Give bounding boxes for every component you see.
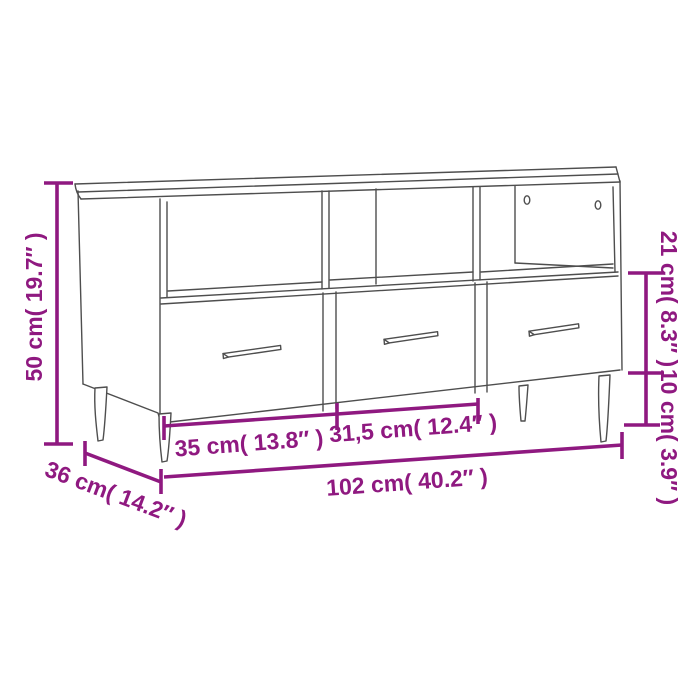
- drawer3-handle: [529, 324, 580, 336]
- side-panel-left-edge: [78, 191, 83, 384]
- shelf-front-edge: [161, 272, 618, 298]
- top-slab-front-top-edge: [78, 174, 618, 192]
- drawer2-handle: [384, 332, 438, 345]
- cabinet-bottom-edge: [161, 370, 620, 423]
- right-inner-edge: [613, 187, 615, 272]
- left-compartment-width-label: 35 cm( 13.8″ ): [174, 424, 325, 461]
- dimension-labels: 50 cm( 19.7″ ) 36 cm( 14.2″ ) 35 cm( 13.…: [21, 231, 682, 532]
- compartment2-floor-line: [330, 272, 473, 280]
- drawer1-handle: [223, 345, 281, 358]
- leg-back-left: [95, 387, 107, 441]
- cabinet-drawing: [75, 167, 622, 462]
- screw-hole-right: [595, 201, 601, 209]
- dimension-lines: [44, 183, 664, 494]
- screw-hole-left: [524, 196, 530, 204]
- top-slab-front-bottom-edge: [81, 182, 620, 199]
- leg-front-right: [599, 375, 610, 442]
- leg-height-label: 10 cm( 3.9″ ): [656, 369, 682, 505]
- depth-label: 36 cm( 14.2″ ): [42, 456, 191, 533]
- dimension-diagram: 50 cm( 19.7″ ) 36 cm( 14.2″ ) 35 cm( 13.…: [0, 0, 700, 700]
- top-slab-back-edge: [75, 167, 616, 184]
- right-outer-edge: [620, 181, 622, 370]
- drawer-top-edge: [161, 276, 618, 304]
- leg-back-right: [519, 385, 528, 421]
- total-width-label: 102 cm( 40.2″ ): [325, 463, 488, 501]
- drawer-section-height-label: 21 cm( 8.3″ ): [656, 231, 682, 367]
- diagram-page: 50 cm( 19.7″ ) 36 cm( 14.2″ ) 35 cm( 13.…: [0, 0, 700, 700]
- height-label: 50 cm( 19.7″ ): [21, 232, 47, 381]
